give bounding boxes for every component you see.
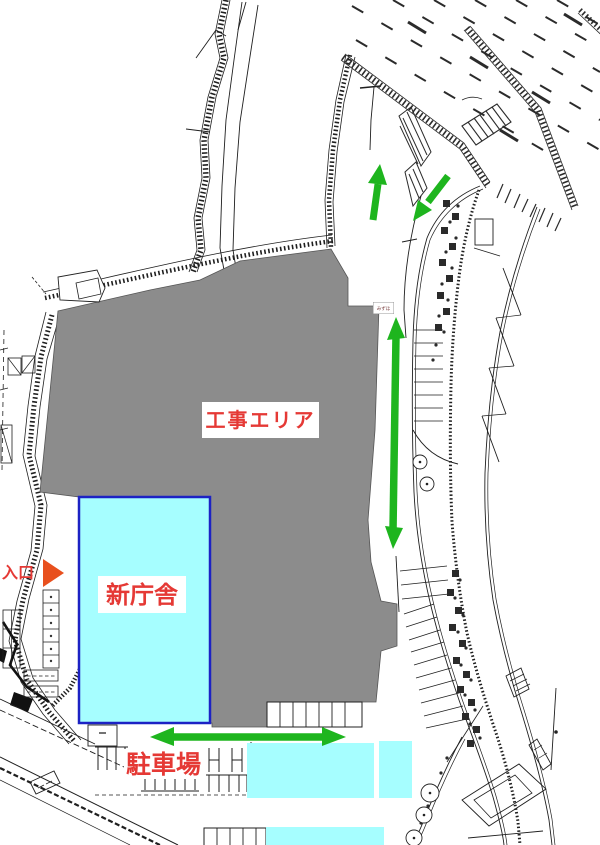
gray-edge-stalls: [267, 702, 362, 727]
edge-comb-marks: [497, 184, 561, 231]
entrance-label: 入口: [2, 565, 34, 581]
flow-arrow-up-icon: [368, 164, 387, 220]
crosswalk: [462, 104, 511, 145]
parking-label: 駐車場: [124, 749, 203, 779]
flow-arrow-vertical-double-icon: [385, 317, 405, 549]
top-notch-building: [58, 270, 105, 302]
street-vegetation: [419, 200, 481, 825]
entrance-arrow-icon: [43, 559, 64, 587]
small-map-sign: みずほ: [373, 302, 394, 314]
lane-dashes: [352, 0, 600, 160]
entrance-marker: 入口: [2, 559, 64, 587]
construction-area-label: 工事エリア: [202, 402, 319, 438]
canopy-strip-1b: [379, 741, 412, 798]
canopy-strip-1: [247, 743, 374, 798]
main-road: [341, 0, 600, 231]
parking-canopies: [247, 741, 412, 845]
new-building-label: 新庁舎: [98, 576, 186, 613]
roadside-street: [396, 186, 558, 845]
canopy-strip-2: [266, 827, 384, 845]
lane-marks: [408, 14, 582, 141]
site-plan-map: 工事エリア 新庁舎 入口 駐車場 みずほ: [0, 0, 600, 845]
